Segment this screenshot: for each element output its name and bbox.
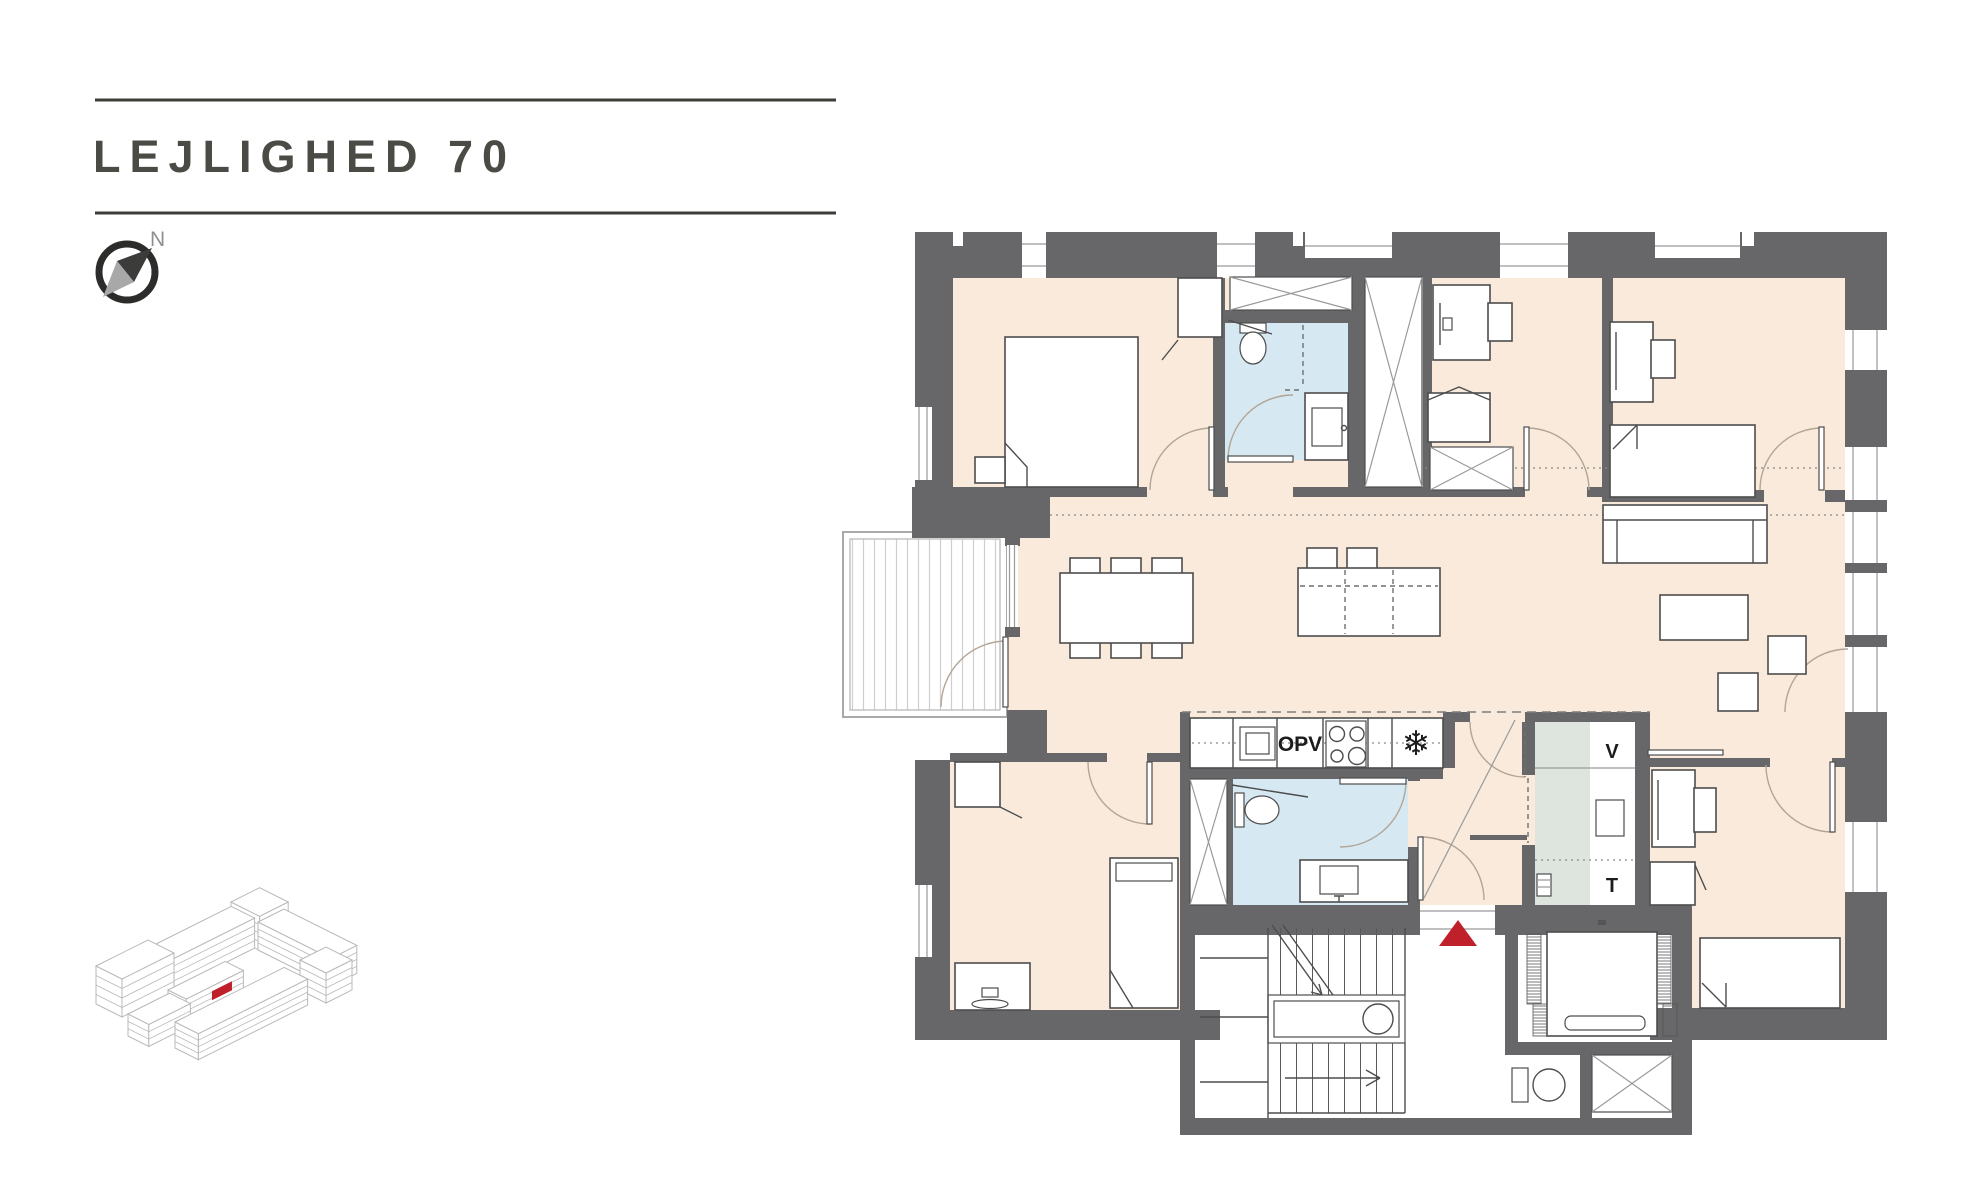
window-top-4	[1500, 232, 1568, 278]
desk-chair	[1651, 340, 1675, 378]
page: LEJLIGHED 70 N	[0, 0, 1984, 1190]
exterior-mask	[905, 712, 1007, 756]
sofa	[1603, 505, 1767, 563]
pillow	[1116, 863, 1172, 881]
closet-bath2-left	[1190, 779, 1227, 905]
balcony-door-leaf	[1003, 637, 1008, 707]
stove	[1326, 721, 1366, 767]
floorplan-sheet: LEJLIGHED 70 N	[0, 0, 1984, 1190]
monitor	[982, 988, 998, 997]
balcony	[843, 532, 1008, 717]
wardrobe	[1650, 862, 1695, 905]
closet-above-bath1	[1230, 277, 1352, 310]
utility-fixture	[1537, 874, 1551, 896]
window-right-6	[1845, 822, 1887, 892]
page-title: LEJLIGHED 70	[93, 131, 516, 182]
chair	[972, 1000, 1008, 1009]
sink	[1312, 408, 1342, 446]
oven-label: OPV	[1278, 733, 1322, 756]
office-chair	[1488, 303, 1512, 341]
elevator-handrail	[1565, 1016, 1645, 1030]
window-right-4	[1845, 573, 1887, 635]
title-block: LEJLIGHED 70	[93, 100, 836, 213]
desk-chair	[1694, 788, 1716, 832]
kitchen-counter: OPV ❄	[1190, 718, 1443, 768]
window-right-2	[1845, 447, 1887, 500]
desk	[1433, 285, 1490, 360]
window-right-3	[1845, 512, 1887, 563]
balcony-deck	[850, 539, 1000, 710]
single-bed	[1610, 425, 1755, 497]
site-plan-boxes	[96, 888, 357, 1060]
freezer-icon: ❄	[1402, 725, 1431, 763]
dining-set	[1060, 558, 1193, 658]
cabinet	[1428, 393, 1490, 442]
floor-plan: OPV ❄ V T	[843, 232, 1887, 1135]
site-plan	[96, 888, 357, 1060]
window-top-5	[1655, 232, 1740, 258]
coffee-table	[1660, 595, 1748, 640]
sink	[1320, 866, 1358, 894]
dryer-label: T	[1606, 875, 1618, 897]
utility-sink	[1596, 800, 1624, 836]
monitor-stand	[1443, 318, 1452, 330]
armchair-2	[1718, 673, 1758, 711]
window-balcony-glass	[1007, 545, 1018, 627]
elevator-mark	[1598, 920, 1606, 925]
wardrobe	[1178, 278, 1222, 337]
window-right-1	[1845, 330, 1887, 370]
single-bed	[1700, 938, 1840, 1008]
north-label: N	[150, 228, 165, 251]
window-left-2	[915, 885, 932, 957]
dining-table	[1060, 573, 1193, 643]
kitchen-sink-basin	[1246, 733, 1269, 754]
armchair-1	[1768, 636, 1806, 674]
closet-hall-tall	[1365, 277, 1422, 487]
crossed-box	[1430, 447, 1513, 490]
window-top-3	[1305, 232, 1392, 258]
stairs-upper-flight	[1268, 928, 1405, 995]
toilet-bowl	[1245, 796, 1279, 824]
toilet-tank	[1235, 793, 1244, 827]
toilet-bowl	[1240, 332, 1266, 364]
washer-label: V	[1605, 741, 1619, 763]
window-right-5-door	[1845, 647, 1887, 712]
bedside-table	[975, 457, 1005, 483]
shaft-crossed	[1592, 1055, 1672, 1112]
compass-icon: N	[99, 228, 165, 300]
window-top-1	[1022, 232, 1046, 278]
stairs-landing	[1268, 995, 1405, 1043]
window-top-2	[1217, 232, 1255, 278]
shelf	[1648, 750, 1723, 755]
window-left-1	[915, 407, 932, 480]
wardrobe	[955, 762, 1000, 807]
